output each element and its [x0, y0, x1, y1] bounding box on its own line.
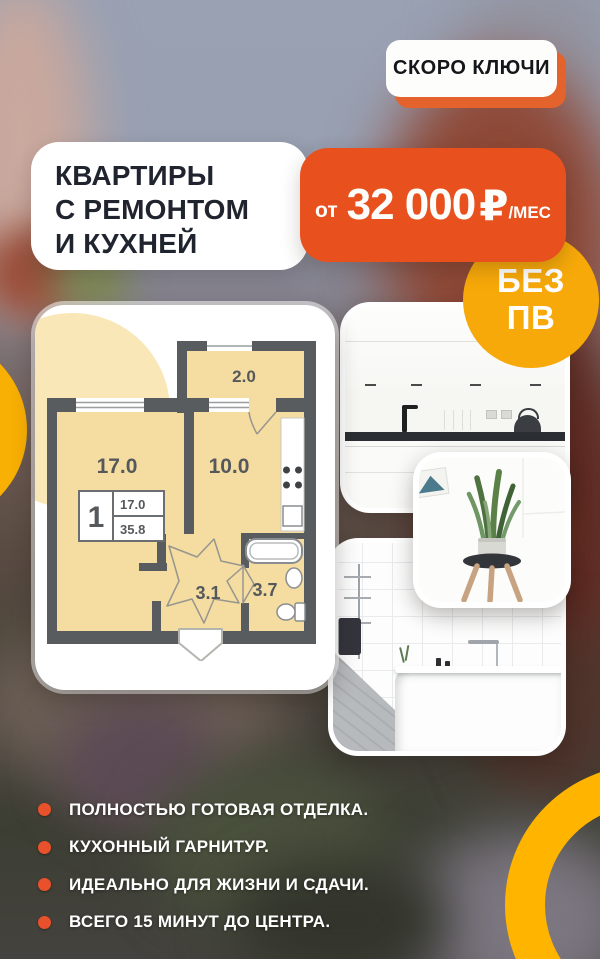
plan-summary-table: 1 17.0 35.8 — [79, 491, 164, 541]
real-estate-poster: СКОРО КЛЮЧИ КВАРТИРЫ С РЕМОНТОМ И КУХНЕЙ… — [0, 0, 600, 959]
headline-line-3: И КУХНЕЙ — [55, 227, 308, 261]
price-prefix: от — [315, 187, 338, 223]
cabinet-handle — [470, 384, 481, 386]
price-period: /МЕС — [508, 187, 551, 223]
glassware — [470, 410, 471, 430]
room-label-bathroom: 3.7 — [252, 580, 277, 600]
kitchen-fixtures — [281, 418, 304, 531]
cabinet-handle — [530, 384, 541, 386]
headline: КВАРТИРЫ С РЕМОНТОМ И КУХНЕЙ — [31, 142, 308, 261]
rooms-count: 1 — [88, 501, 105, 534]
feature-item: ИДЕАЛЬНО ДЛЯ ЖИЗНИ И СДАЧИ. — [28, 866, 369, 904]
bathtub — [395, 668, 563, 753]
towel-rail-bar — [344, 576, 371, 578]
feature-text: ИДЕАЛЬНО ДЛЯ ЖИЗНИ И СДАЧИ. — [69, 875, 369, 895]
plant-photo — [413, 452, 571, 608]
towel-rail-bar — [344, 597, 371, 599]
power-outlet — [501, 410, 512, 419]
entry-door — [179, 629, 222, 661]
bullet-dot-icon — [38, 841, 51, 854]
status-badge-label: СКОРО КЛЮЧИ — [393, 57, 550, 80]
floorplan-card: 1 17.0 35.8 2.0 17.0 10.0 3.1 3.7 — [35, 305, 335, 690]
balcony-door-opening — [249, 398, 276, 412]
glassware — [453, 410, 454, 430]
price-badge: от 32 000 ₽ /МЕС — [300, 148, 566, 262]
no-downpayment-line-2: ПВ — [507, 300, 556, 337]
headline-line-2: С РЕМОНТОМ — [55, 193, 308, 227]
headline-card: КВАРТИРЫ С РЕМОНТОМ И КУХНЕЙ — [31, 142, 308, 270]
plant-illustration — [419, 458, 565, 602]
apartment-floorplan: 1 17.0 35.8 2.0 17.0 10.0 3.1 3.7 — [47, 339, 319, 661]
bullet-dot-icon — [38, 916, 51, 929]
bath-faucet — [468, 640, 499, 644]
picture-frame — [419, 468, 449, 499]
feature-item: ВСЕГО 15 МИНУТ ДО ЦЕНТРА. — [28, 904, 369, 942]
status-badge-face: СКОРО КЛЮЧИ — [386, 40, 557, 97]
glassware — [462, 410, 463, 430]
room-label-kitchen: 10.0 — [209, 455, 250, 478]
faucet — [402, 405, 407, 432]
power-outlet — [486, 410, 497, 419]
feature-text: КУХОННЫЙ ГАРНИТУР. — [69, 837, 269, 857]
living-area: 17.0 — [120, 497, 145, 512]
countertop — [345, 432, 565, 441]
features-list: ПОЛНОСТЬЮ ГОТОВАЯ ОТДЕЛКА. КУХОННЫЙ ГАРН… — [28, 791, 369, 941]
price-amount: 32 000 — [347, 180, 476, 230]
room-label-balcony: 2.0 — [232, 367, 256, 386]
feature-text: ПОЛНОСТЬЮ ГОТОВАЯ ОТДЕЛКА. — [69, 800, 368, 820]
status-badge: СКОРО КЛЮЧИ — [386, 40, 557, 97]
ruble-sign-icon: ₽ — [479, 181, 508, 230]
feature-text: ВСЕГО 15 МИНУТ ДО ЦЕНТРА. — [69, 912, 330, 932]
bullet-dot-icon — [38, 878, 51, 891]
feature-item: КУХОННЫЙ ГАРНИТУР. — [28, 829, 369, 867]
towel — [338, 618, 361, 655]
headline-line-1: КВАРТИРЫ — [55, 159, 308, 193]
cabinet-handle — [411, 384, 422, 386]
cabinet-seam — [345, 446, 565, 447]
room-label-living: 17.0 — [97, 455, 138, 478]
bullet-dot-icon — [38, 803, 51, 816]
cabinet-handle — [365, 384, 376, 386]
feature-item: ПОЛНОСТЬЮ ГОТОВАЯ ОТДЕЛКА. — [28, 791, 369, 829]
total-area: 35.8 — [120, 522, 145, 537]
bathtub-rim — [395, 666, 563, 673]
glassware — [444, 410, 445, 430]
no-downpayment-line-1: БЕЗ — [497, 263, 565, 300]
room-label-hall: 3.1 — [195, 583, 220, 603]
